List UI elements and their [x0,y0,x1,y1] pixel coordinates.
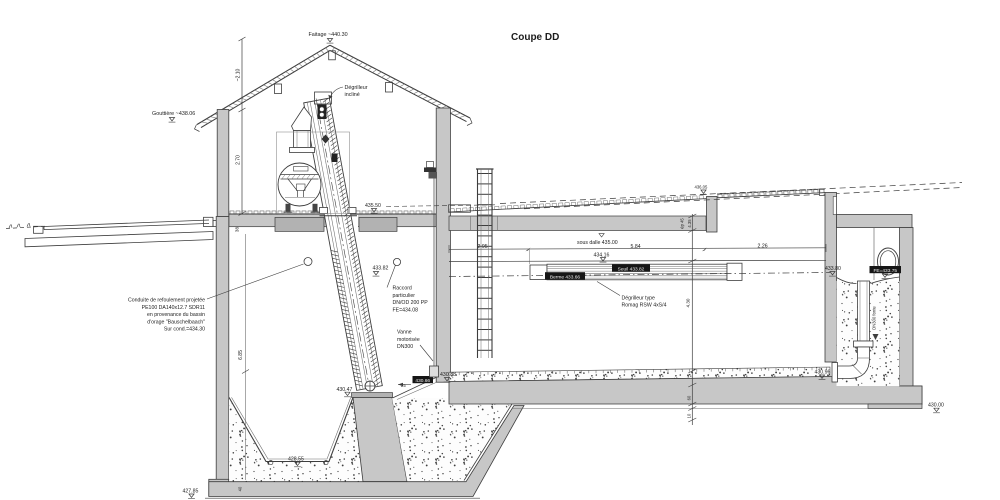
svg-text:436.05: 436.05 [695,185,708,190]
svg-text:en provenance du bassin: en provenance du bassin [147,312,205,318]
svg-text:FE=434.08: FE=434.08 [393,307,419,313]
svg-text:incliné: incliné [345,92,360,98]
svg-text:Sur cond.=434.30: Sur cond.=434.30 [164,327,205,333]
svg-text:6.85: 6.85 [238,350,244,360]
svg-text:Gouttière ~438.06: Gouttière ~438.06 [152,111,195,117]
svg-text:Coupe DD: Coupe DD [511,32,559,43]
svg-text:430.96: 430.96 [815,370,831,376]
svg-text:motorisée: motorisée [397,337,420,343]
svg-text:38: 38 [235,227,240,233]
svg-text:PE100 DA140x12.7 SDR11: PE100 DA140x12.7 SDR11 [142,305,205,311]
svg-text:4.35: 4.35 [687,219,692,228]
svg-text:DN300: DN300 [397,344,413,350]
svg-text:10: 10 [687,413,692,418]
svg-text:Dégrilleur type: Dégrilleur type [622,296,656,302]
svg-text:430.66: 430.66 [415,378,430,384]
svg-text:4.30: 4.30 [686,298,691,307]
svg-text:particulier: particulier [393,293,416,299]
svg-text:60: 60 [687,395,692,400]
svg-text:430.88: 430.88 [440,372,456,378]
svg-text:40: 40 [238,486,243,491]
svg-text:Raccord: Raccord [393,286,412,292]
svg-text:ép 45: ép 45 [680,218,685,229]
svg-text:5.84: 5.84 [631,244,641,250]
svg-text:Seuil 433.82: Seuil 433.82 [618,267,645,273]
svg-text:Faitage ~440.30: Faitage ~440.30 [309,32,348,38]
svg-text:433.80: 433.80 [825,266,841,272]
svg-text:Conduite de refoulement projet: Conduite de refoulement projetée [128,298,205,304]
svg-text:430.00: 430.00 [928,403,944,409]
svg-text:Dégrilleur: Dégrilleur [345,85,368,91]
svg-text:Romag RSW 4xS/4: Romag RSW 4xS/4 [622,303,667,309]
svg-text:DN/OD 200 PP: DN/OD 200 PP [393,300,429,306]
svg-text:Berme 433.66: Berme 433.66 [550,274,580,280]
svg-text:435.50: 435.50 [365,203,381,209]
svg-text:Vanne: Vanne [397,330,412,336]
svg-text:2.70: 2.70 [236,155,242,165]
svg-text:d'orage "Bauschelbaach": d'orage "Bauschelbaach" [147,319,205,325]
svg-text:DN300 fonte: DN300 fonte [872,306,877,330]
svg-text:2.95: 2.95 [478,244,488,250]
svg-text:433.82: 433.82 [373,265,389,271]
svg-text:sous dalle 435.00: sous dalle 435.00 [577,240,618,246]
svg-text:~2.10: ~2.10 [236,68,242,81]
svg-text:428.55: 428.55 [288,456,304,462]
svg-text:427.85: 427.85 [183,489,199,495]
svg-text:FE=433.75: FE=433.75 [873,268,897,274]
svg-text:2.26: 2.26 [758,243,768,249]
